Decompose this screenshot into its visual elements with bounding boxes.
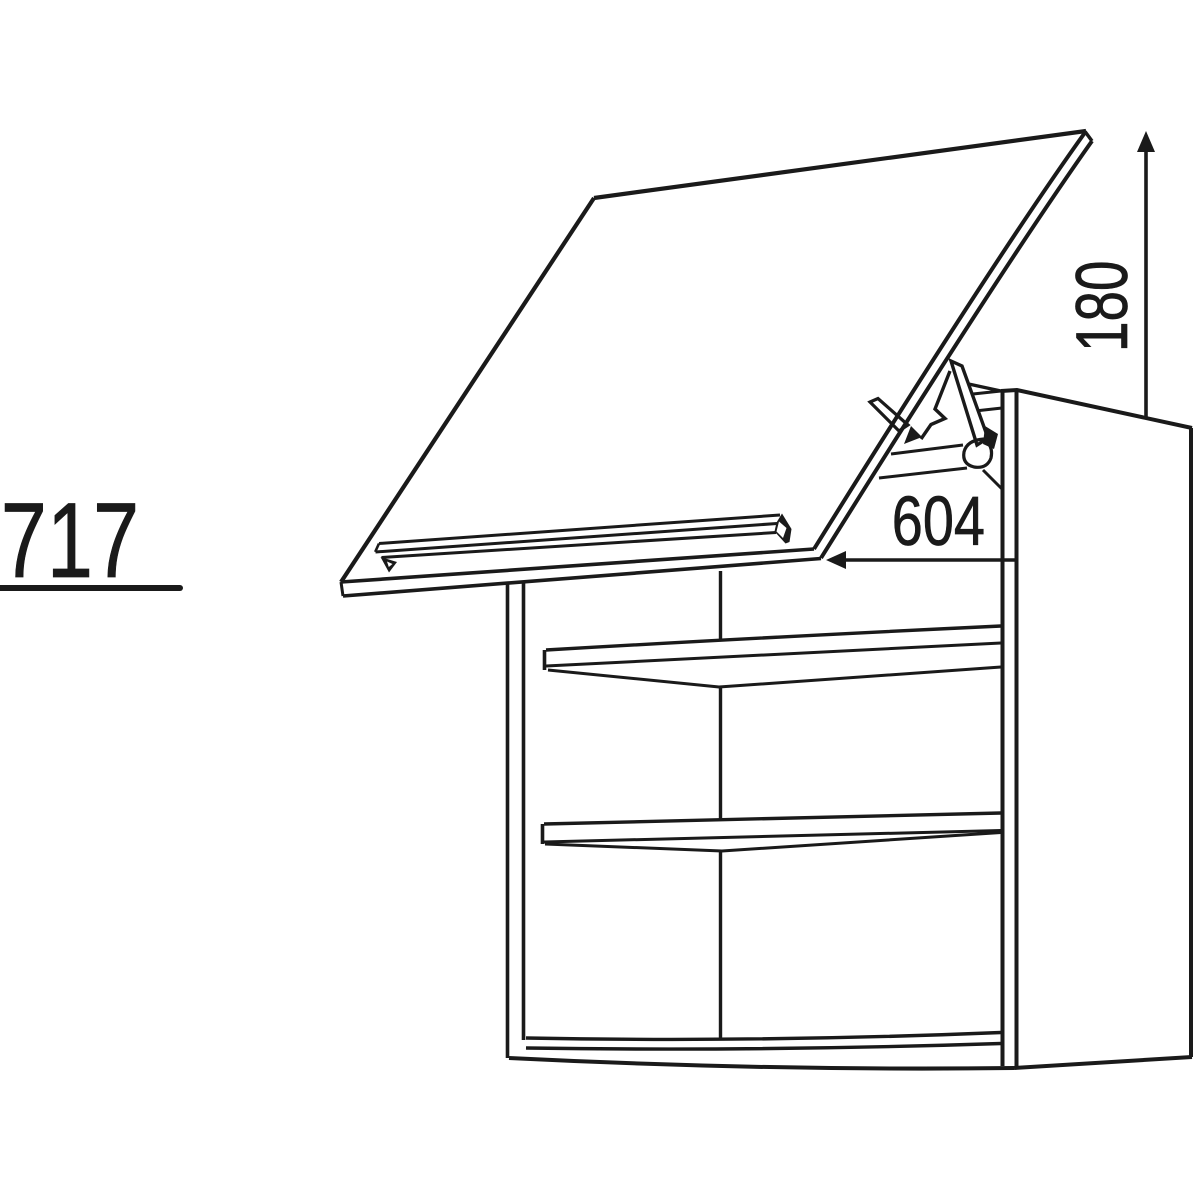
- svg-text:180: 180: [1061, 261, 1142, 352]
- svg-text:604: 604: [892, 483, 985, 560]
- svg-text:717: 717: [1, 482, 139, 600]
